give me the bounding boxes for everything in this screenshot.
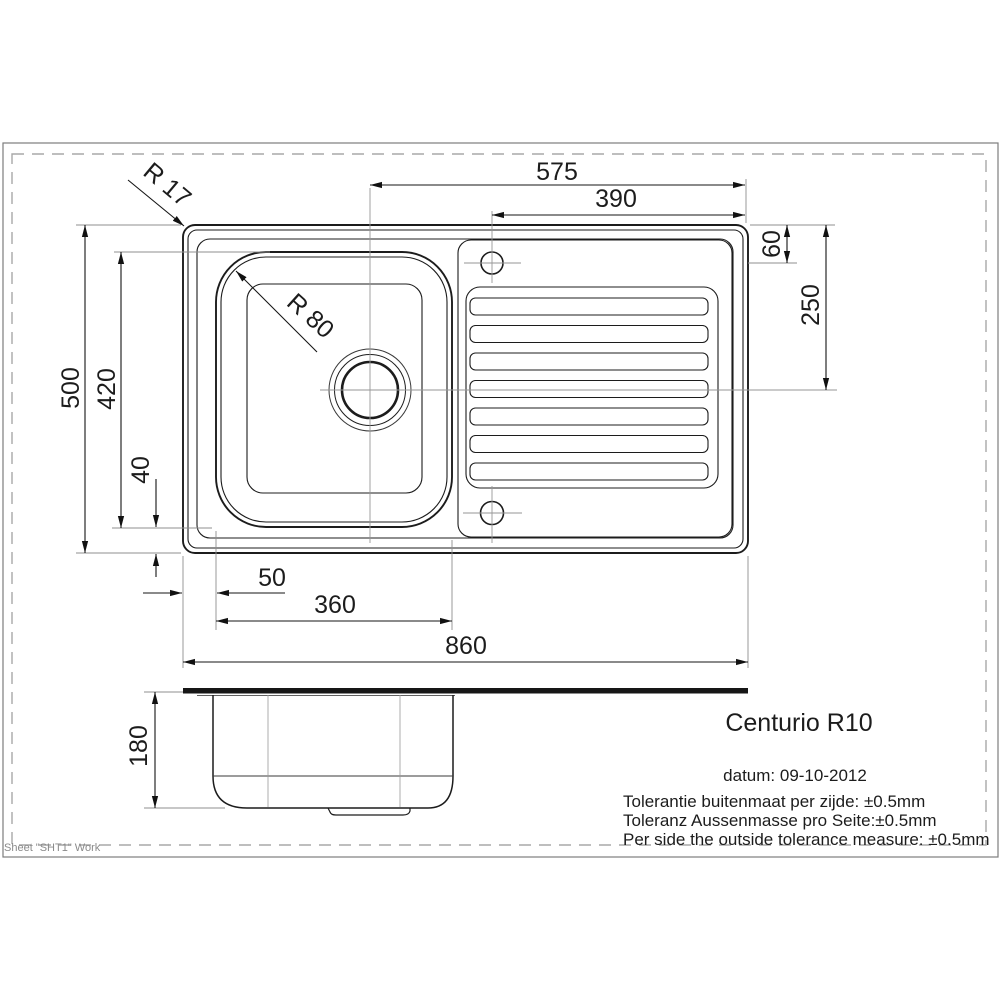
dim-label-60: 60 <box>758 230 786 258</box>
radius-label-r17: R 17 <box>138 157 196 212</box>
side-bowl-profile <box>213 695 453 808</box>
dim-label-500: 500 <box>57 367 85 409</box>
drainer-groove <box>470 436 708 453</box>
side-drain-fitting <box>328 808 410 815</box>
dim-label-420: 420 <box>93 368 121 410</box>
drawing-page: 575 390 60 250 500 420 40 50 360 860 180… <box>0 0 1000 1000</box>
tolerance-line-de: Toleranz Aussenmasse pro Seite:±0.5mm <box>623 811 937 830</box>
tolerance-line-en: Per side the outside tolerance measure: … <box>623 830 990 849</box>
side-rim-surface <box>183 688 748 694</box>
dim-label-390: 390 <box>595 185 637 213</box>
tolerance-line-nl: Tolerantie buitenmaat per zijde: ±0.5mm <box>623 792 925 811</box>
drainer-panel-outline <box>458 240 732 537</box>
dim-label-40: 40 <box>127 456 155 484</box>
top-view <box>183 188 837 553</box>
sheet-label: Sheet "SHT1" Work <box>4 842 101 854</box>
technical-drawing: 575 390 60 250 500 420 40 50 360 860 180… <box>0 0 1000 1000</box>
bowl-inner-edge <box>221 257 447 522</box>
dim-label-50: 50 <box>258 564 286 592</box>
dimension-lines <box>85 180 826 808</box>
bowl-outer-edge <box>216 252 452 527</box>
dashed-drawing-border <box>12 154 986 845</box>
date-label: datum: 09-10-2012 <box>723 766 867 785</box>
drainer-recess-outline <box>466 287 718 488</box>
drainer-groove <box>470 463 708 480</box>
drainer-groove <box>470 326 708 343</box>
dim-label-575: 575 <box>536 158 578 186</box>
drainer-groove <box>470 298 708 315</box>
drainer-groove <box>470 353 708 370</box>
drainer-groove <box>470 408 708 425</box>
dim-label-860: 860 <box>445 632 487 660</box>
drainer-groove <box>470 381 708 398</box>
dim-label-180: 180 <box>125 725 153 767</box>
radius-label-r80: R 80 <box>281 288 339 344</box>
dimension-labels: 575 390 60 250 500 420 40 50 360 860 180… <box>57 157 825 767</box>
drainer-grooves <box>470 298 708 480</box>
extension-lines <box>76 179 835 808</box>
dim-label-250: 250 <box>797 284 825 326</box>
title-block: Centurio R10 datum: 09-10-2012 Toleranti… <box>623 709 990 849</box>
dim-label-360: 360 <box>314 591 356 619</box>
product-name: Centurio R10 <box>725 709 872 737</box>
